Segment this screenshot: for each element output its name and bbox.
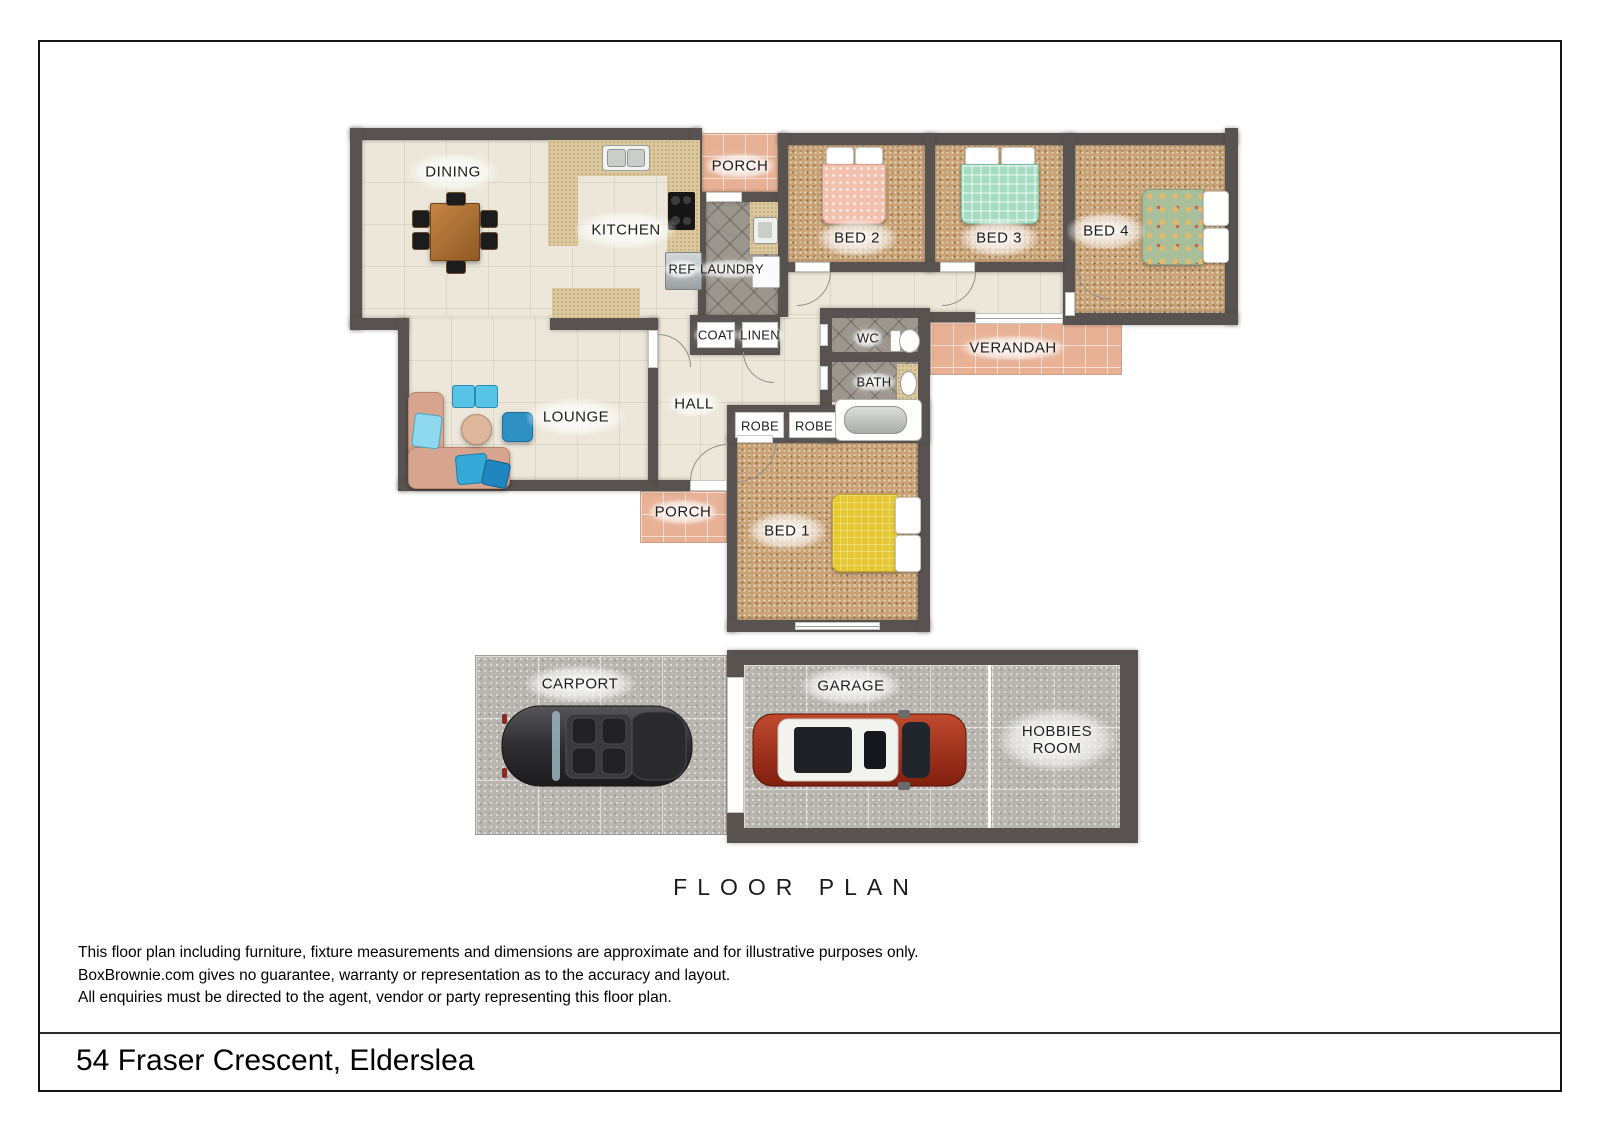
page-border-frame bbox=[38, 40, 1562, 1092]
floor-plan-page: DINING KITCHEN PORCH BED 2 BED 3 BED 4 R… bbox=[0, 0, 1600, 1131]
